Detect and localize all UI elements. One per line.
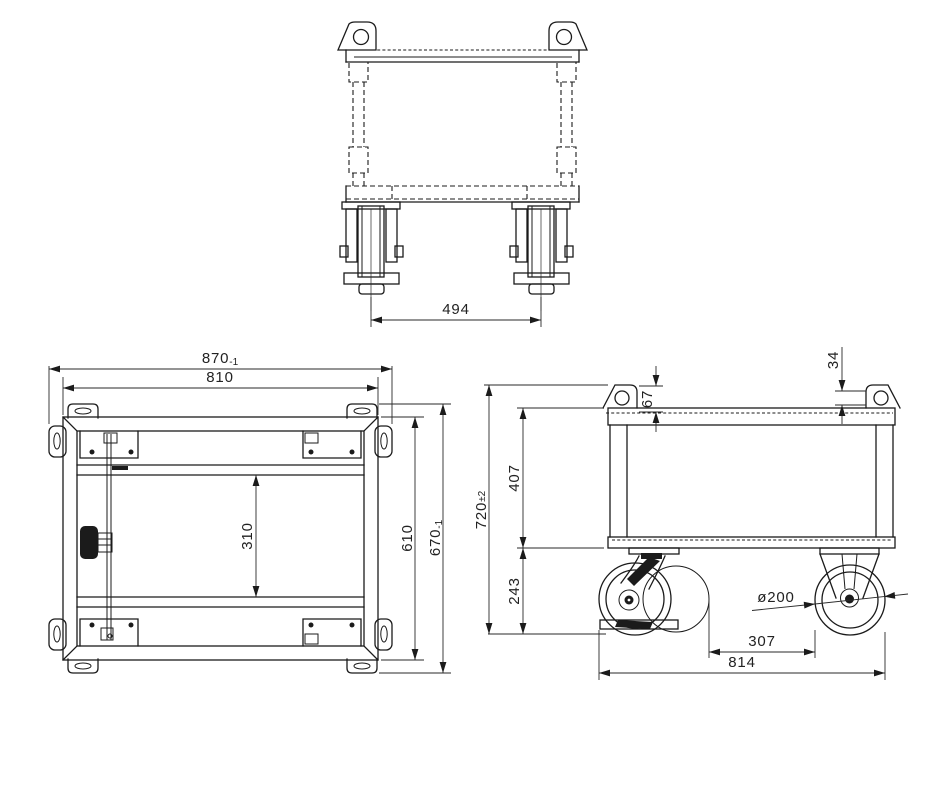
tab-hole <box>354 30 369 45</box>
axle-nut <box>510 246 518 257</box>
axle-nut <box>340 246 348 257</box>
front-top-rail <box>346 50 579 62</box>
trolley-drawing: 494 <box>0 0 940 788</box>
front-right-caster <box>510 202 573 311</box>
side-fixed-caster <box>815 548 885 635</box>
tab-hole <box>615 391 629 405</box>
dim-caster-height: 243 <box>506 548 523 634</box>
front-view: 494 <box>338 22 587 327</box>
dimension-label-720: 720±2 <box>473 490 490 529</box>
plan-corner-tabs <box>68 404 377 673</box>
side-swivel-caster <box>599 548 709 635</box>
side-top-rail <box>606 408 895 425</box>
dim-swivel-to-wheel: 307 <box>709 600 815 658</box>
dim-frame-width: 810 <box>63 369 378 415</box>
dimension-label-494: 494 <box>442 301 469 318</box>
dim-tab-to-rail: 67 <box>639 366 663 432</box>
tab-slot <box>381 626 387 642</box>
tab-slot <box>54 433 60 449</box>
dimension-label-610: 610 <box>399 524 416 551</box>
front-right-leg <box>557 62 576 186</box>
dimension-label-34: 34 <box>825 351 842 369</box>
brake-pedal <box>615 620 653 629</box>
tab-hole <box>874 391 888 405</box>
side-view: 720±2 407 243 67 34 <box>473 347 908 680</box>
dim-frame-height: 407 <box>506 408 604 548</box>
dimension-label-870: 870-1 <box>202 350 239 368</box>
plan-caster-plates <box>80 431 361 646</box>
front-bottom-rail <box>346 186 579 202</box>
dim-cross-rail-gap: 310 <box>239 475 256 597</box>
dim-overall-wheel-span: 814 <box>599 630 885 680</box>
dim-caster-spacing: 494 <box>371 297 541 327</box>
dim-overall-height: 720±2 <box>473 385 608 634</box>
front-left-leg <box>349 62 368 186</box>
side-left-tab <box>603 385 637 408</box>
tab-slot <box>354 663 370 669</box>
brake-lever <box>627 557 660 586</box>
dimension-label-407: 407 <box>506 464 523 491</box>
dimension-label-310: 310 <box>239 522 256 549</box>
dimension-label-dia200: ø200 <box>757 589 794 606</box>
axle-nut <box>395 246 403 257</box>
dimension-label-810: 810 <box>206 369 233 386</box>
front-left-tab <box>338 22 376 50</box>
dimension-label-243: 243 <box>506 577 523 604</box>
side-legs <box>610 425 893 537</box>
front-left-caster <box>340 202 403 311</box>
side-bottom-rail <box>608 537 895 548</box>
tab-slot <box>75 663 91 669</box>
technical-drawing-page: 494 <box>0 0 940 788</box>
plan-view: 870-1 810 310 610 670-1 <box>49 350 451 673</box>
tab-slot <box>54 626 60 642</box>
dimension-label-67: 67 <box>639 390 656 408</box>
weld-mark <box>112 466 128 470</box>
brake-knob <box>80 526 98 559</box>
plan-cross-rails <box>77 465 364 607</box>
front-right-tab <box>549 22 587 50</box>
axle-nut <box>565 246 573 257</box>
dim-overall-width: 870-1 <box>49 350 392 424</box>
tab-hole <box>557 30 572 45</box>
tab-slot <box>381 433 387 449</box>
dim-tab-hole-offset: 34 <box>825 347 866 424</box>
dimension-label-307: 307 <box>748 633 775 650</box>
side-right-tab <box>866 385 900 408</box>
tab-slot <box>354 408 370 414</box>
dimension-label-814: 814 <box>728 654 755 671</box>
dimension-label-670: 670-1 <box>427 519 445 556</box>
tab-slot <box>75 408 91 414</box>
plan-side-tabs <box>49 426 392 650</box>
axle <box>845 595 854 604</box>
dim-frame-depth: 610 <box>381 417 424 660</box>
